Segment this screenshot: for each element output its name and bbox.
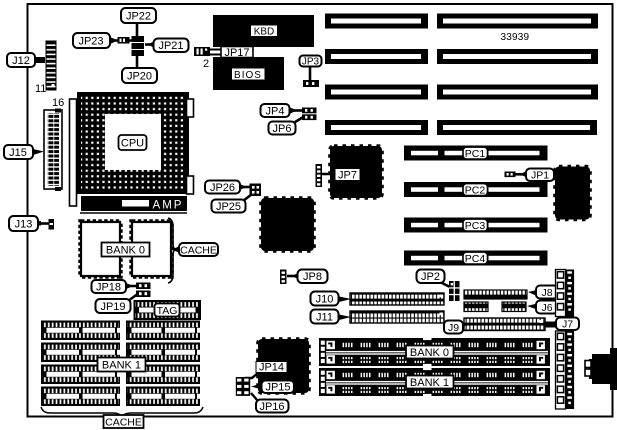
svg-text:JP14: JP14 [259,362,284,374]
svg-text:J6: J6 [541,302,552,314]
svg-text:J9: J9 [448,322,459,334]
svg-text:JP20: JP20 [127,71,152,83]
svg-text:JP8: JP8 [303,271,322,283]
svg-text:CPU: CPU [121,138,144,150]
svg-text:PC2: PC2 [465,184,486,196]
svg-text:AMP: AMP [153,200,184,212]
svg-text:JP16: JP16 [259,401,284,413]
svg-text:33939: 33939 [501,32,530,43]
svg-text:16: 16 [52,97,64,109]
svg-text:PC4: PC4 [465,253,486,265]
svg-text:J8: J8 [541,287,552,299]
svg-text:JP4: JP4 [266,106,285,118]
svg-text:JP18: JP18 [96,282,121,294]
svg-text:PC3: PC3 [465,220,486,232]
svg-text:JP2: JP2 [421,271,440,283]
svg-text:JP26: JP26 [210,182,235,194]
svg-text:JP6: JP6 [273,123,292,135]
svg-text:J7: J7 [562,319,573,331]
svg-text:2: 2 [203,58,209,70]
svg-text:JP3: JP3 [302,57,320,68]
svg-text:JP21: JP21 [158,40,183,52]
svg-text:J13: J13 [15,219,33,231]
svg-text:JP1: JP1 [531,170,549,182]
svg-text:JP25: JP25 [216,201,241,213]
svg-text:BANK 1: BANK 1 [102,360,141,372]
svg-text:J12: J12 [12,55,30,67]
svg-text:KBD: KBD [254,27,275,38]
svg-text:JP7: JP7 [338,170,357,182]
svg-text:TAG: TAG [157,305,178,317]
svg-text:BANK 1: BANK 1 [410,377,449,389]
svg-text:11: 11 [35,83,46,95]
svg-text:PC1: PC1 [465,148,486,160]
svg-text:BIOS: BIOS [234,70,262,81]
svg-text:JP19: JP19 [100,301,125,313]
svg-text:JP15: JP15 [265,382,290,394]
svg-text:BANK 0: BANK 0 [410,347,449,359]
svg-text:JP23: JP23 [78,36,103,48]
svg-text:J11: J11 [316,312,333,324]
svg-text:JP17: JP17 [224,47,249,59]
svg-text:CACHE: CACHE [180,245,217,257]
svg-text:CACHE: CACHE [105,417,142,429]
svg-text:BANK 0: BANK 0 [106,245,145,257]
svg-text:J10: J10 [316,294,334,306]
svg-text:J15: J15 [9,147,27,159]
svg-text:JP22: JP22 [126,11,151,23]
